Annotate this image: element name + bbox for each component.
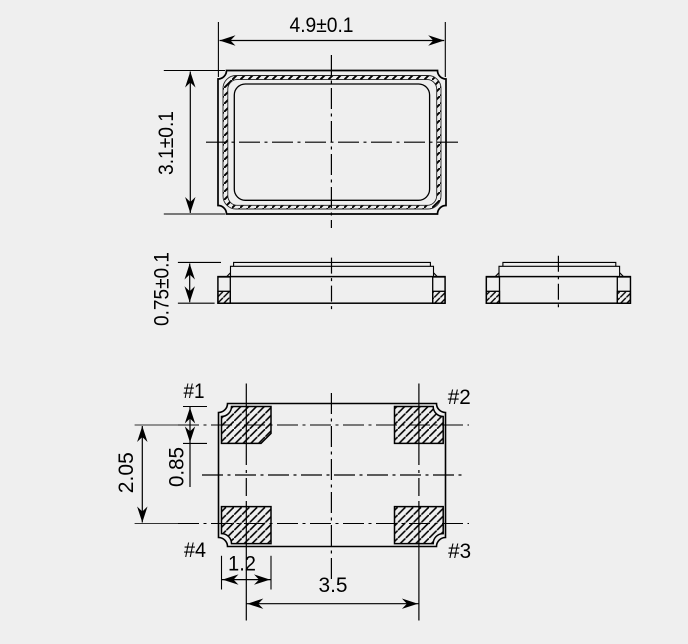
svg-text:#4: #4 — [184, 538, 206, 562]
svg-text:#2: #2 — [448, 385, 471, 409]
svg-text:1.2: 1.2 — [228, 552, 256, 576]
svg-text:0.85: 0.85 — [165, 447, 189, 487]
svg-text:3.1±0.1: 3.1±0.1 — [154, 111, 178, 175]
svg-text:#3: #3 — [448, 539, 471, 563]
svg-text:0.75±0.1: 0.75±0.1 — [150, 252, 174, 326]
svg-text:3.5: 3.5 — [319, 573, 348, 597]
svg-text:4.9±0.1: 4.9±0.1 — [290, 13, 354, 37]
svg-text:2.05: 2.05 — [114, 452, 138, 493]
svg-text:#1: #1 — [184, 379, 205, 403]
